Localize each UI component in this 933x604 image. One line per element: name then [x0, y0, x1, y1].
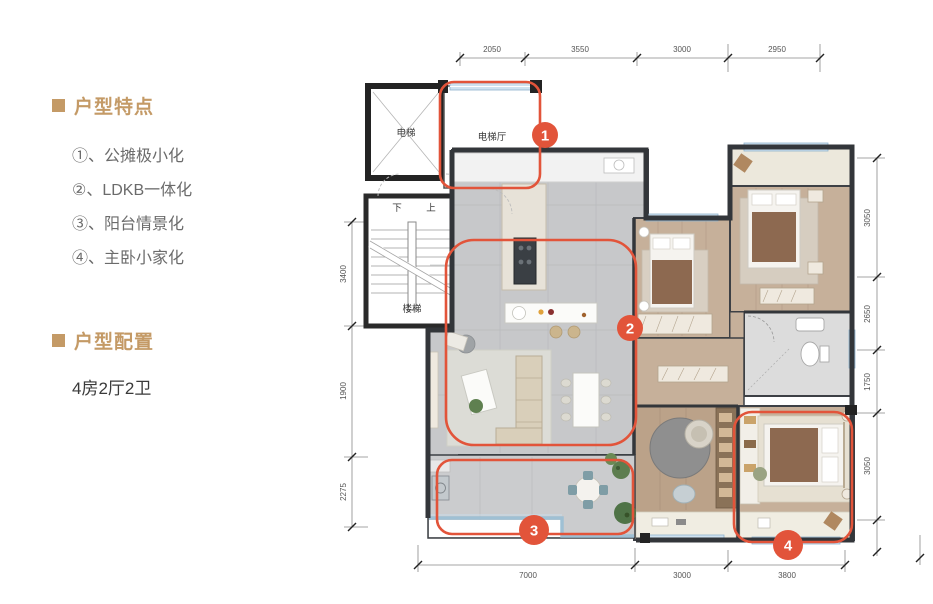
svg-text:1: 1: [541, 128, 549, 145]
washing-machine: [432, 476, 449, 500]
room-label-down: 下: [392, 203, 402, 214]
dim-top-4: 2950: [768, 45, 786, 54]
dim-right-1: 3050: [863, 209, 872, 227]
dim-right-3: 1750: [863, 373, 872, 391]
patio-table: [575, 477, 601, 503]
dining-zone: [561, 373, 611, 427]
plant: [469, 399, 483, 413]
tv-console: [430, 352, 438, 428]
apartment: [428, 143, 857, 544]
dim-bottom-2: 3000: [673, 571, 691, 580]
nightstand: [639, 301, 649, 311]
slide: 户型特点 ①、公摊极小化 ②、LDKB一体化 ③、阳台情景化 ④、主卧小家化 户…: [0, 0, 933, 604]
dim-top-1: 2050: [483, 45, 501, 54]
room-label-elevator: 电梯: [396, 127, 416, 139]
dim-bottom-1: 7000: [519, 571, 537, 580]
blanket: [770, 428, 818, 482]
cooktop: [514, 238, 536, 284]
dim-left-1: 3400: [339, 265, 348, 283]
svg-text:4: 4: [784, 538, 793, 555]
room-label-stairs: 楼梯: [402, 303, 422, 315]
hallway: [634, 338, 744, 406]
cabinet: [658, 366, 728, 382]
dim-right-4: 3050: [863, 457, 872, 475]
floor-plan: 2050 3550 3000 2950 7000 3000 3800: [0, 0, 933, 604]
dining-table: [573, 373, 599, 427]
patio-chair: [568, 485, 577, 495]
master-bedroom: [738, 406, 854, 544]
patio-chair: [583, 500, 593, 509]
dim-top-3: 3000: [673, 45, 691, 54]
sofa-chaise: [496, 428, 542, 444]
chair: [673, 485, 695, 503]
sofa: [516, 356, 542, 440]
highlight-badge-2: 2: [617, 315, 643, 341]
room-label-up: 上: [426, 203, 436, 214]
highlight-badge-3: 3: [519, 515, 549, 545]
bathroom: [730, 312, 855, 396]
svg-text:2: 2: [626, 321, 634, 338]
bedroom-middle: [634, 214, 730, 338]
blanket: [752, 212, 796, 262]
dim-right-2: 2650: [863, 305, 872, 323]
blanket: [652, 260, 692, 304]
dim-left-2: 1900: [339, 382, 348, 400]
svg-text:3: 3: [530, 523, 538, 540]
pouf: [753, 467, 767, 481]
nightstand: [808, 190, 823, 202]
study-room: [634, 406, 738, 542]
dim-left-3: 2275: [339, 483, 348, 501]
room-label-elevator-hall: 电梯厅: [478, 131, 507, 143]
nightstand: [639, 227, 649, 237]
dimension-top: 2050 3550 3000 2950: [456, 44, 824, 72]
patio-chair: [583, 471, 593, 480]
dimension-right: 3050 2650 1750 3050: [857, 154, 885, 556]
bedroom-topright: [730, 143, 852, 312]
toilet: [801, 342, 819, 366]
highlight-badge-1: 1: [532, 122, 558, 148]
patio-chair: [599, 485, 608, 495]
nightstand: [808, 262, 823, 274]
highlight-badge-4: 4: [773, 530, 803, 560]
dim-bottom-3: 3800: [778, 571, 796, 580]
sink: [796, 318, 824, 331]
dim-top-2: 3550: [571, 45, 589, 54]
